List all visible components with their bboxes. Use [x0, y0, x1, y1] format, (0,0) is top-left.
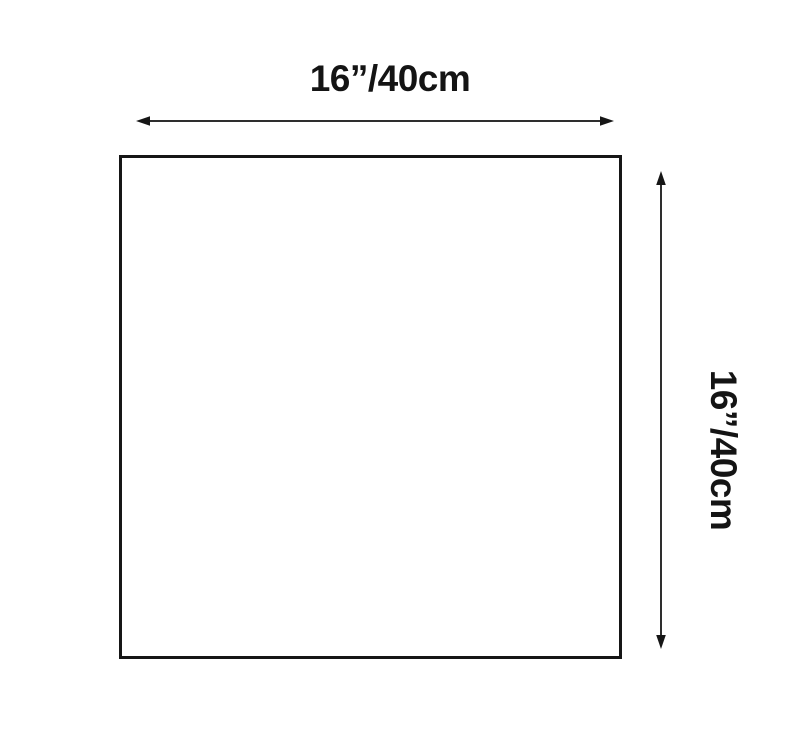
height-dimension-label: 16”/40cm [698, 250, 742, 650]
square-outline [119, 155, 622, 659]
height-dimension-arrow-icon [652, 171, 670, 649]
width-arrowhead-left [136, 116, 150, 126]
width-dimension-label: 16”/40cm [190, 60, 590, 102]
height-arrowhead-top [656, 171, 666, 185]
height-arrowhead-bottom [656, 635, 666, 649]
dimension-diagram: 16”/40cm 16”/40cm [0, 0, 800, 745]
width-arrowhead-right [600, 116, 614, 126]
width-dimension-arrow-icon [136, 112, 614, 130]
